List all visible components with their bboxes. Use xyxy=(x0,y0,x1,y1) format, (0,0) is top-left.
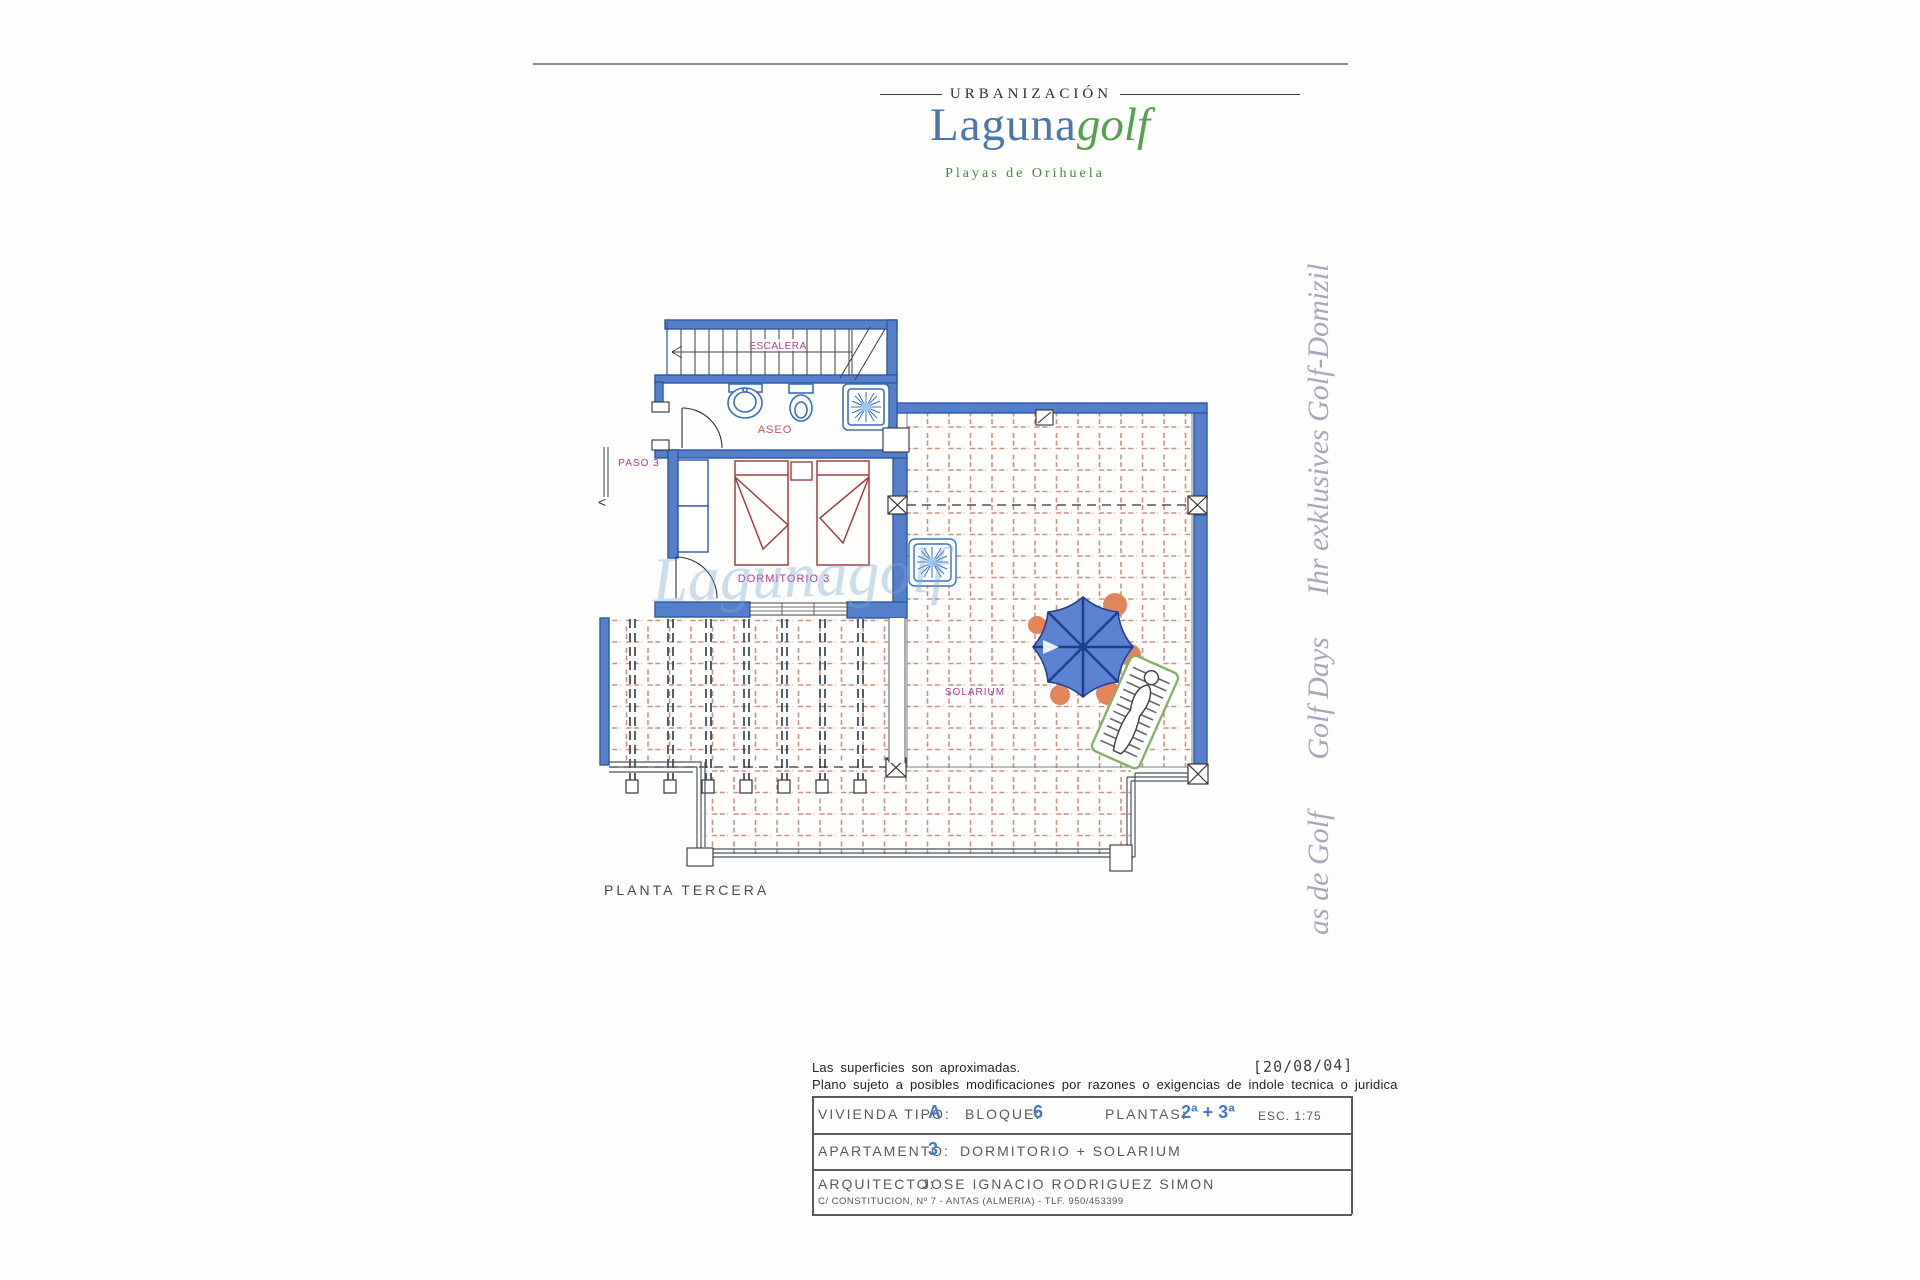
arquitecto-label: ARQUITECTO: xyxy=(818,1176,935,1192)
ghost-watermark: Lagunagolf xyxy=(651,532,973,617)
drain-marker xyxy=(1036,410,1053,425)
escala-text: ESC. 1:75 xyxy=(1258,1109,1322,1123)
apartamento-desc: DORMITORIO + SOLARIUM xyxy=(960,1143,1182,1159)
room-label-aseo: ASEO xyxy=(758,424,793,436)
staircase: ESCALERA xyxy=(672,327,885,380)
disclaimer-line-2: Plano sujeto a posibles modificaciones p… xyxy=(812,1077,1398,1092)
titleblock-border-top xyxy=(812,1096,1352,1098)
room-label-paso: PASO 3 xyxy=(618,458,659,469)
titleblock-border-left xyxy=(812,1096,814,1214)
plantas-value: 2ª + 3ª xyxy=(1181,1102,1235,1123)
parapet-strip xyxy=(889,618,905,763)
floor-caption: PLANTA TERCERA xyxy=(604,882,769,898)
date-stamp: [20/08/04] xyxy=(1253,1056,1354,1077)
room-label-solarium: SOLARIUM xyxy=(945,687,1005,698)
nightstand xyxy=(791,462,812,480)
toilet-icon xyxy=(789,384,813,421)
closet xyxy=(678,460,708,552)
bloque-label: BLOQUE: xyxy=(965,1106,1041,1122)
paso-area: < PASO 3 xyxy=(598,447,660,510)
washbasin-icon xyxy=(728,384,762,418)
titleblock-border-row2 xyxy=(812,1169,1352,1171)
vivienda-value: A xyxy=(928,1102,941,1123)
titleblock-border-bottom xyxy=(812,1214,1352,1216)
scanned-floorplan-sheet: URBANIZACIÓN Lagunagolf Playas de Orihue… xyxy=(0,0,1920,1280)
arquitecto-address: C/ CONSTITUCION, Nº 7 - ANTAS (ALMERIA) … xyxy=(818,1196,1124,1207)
arquitecto-value: JOSE IGNACIO RODRIGUEZ SIMON xyxy=(922,1176,1215,1192)
plantas-label: PLANTAS: xyxy=(1105,1106,1188,1122)
room-label-escalera: ESCALERA xyxy=(749,341,806,352)
bathroom-fixtures xyxy=(728,384,889,430)
shower-tray-icon xyxy=(843,384,889,430)
apartamento-value: 3 xyxy=(928,1139,938,1160)
disclaimer-line-1: Las superficies son aproximadas. xyxy=(812,1060,1020,1075)
titleblock-border-row1 xyxy=(812,1133,1352,1135)
bloque-value: 6 xyxy=(1033,1102,1043,1123)
aseo-window xyxy=(883,428,909,452)
aseo-door xyxy=(652,402,722,450)
left-arrow-glyph: < xyxy=(598,494,606,510)
titleblock-border-right xyxy=(1351,1096,1353,1214)
